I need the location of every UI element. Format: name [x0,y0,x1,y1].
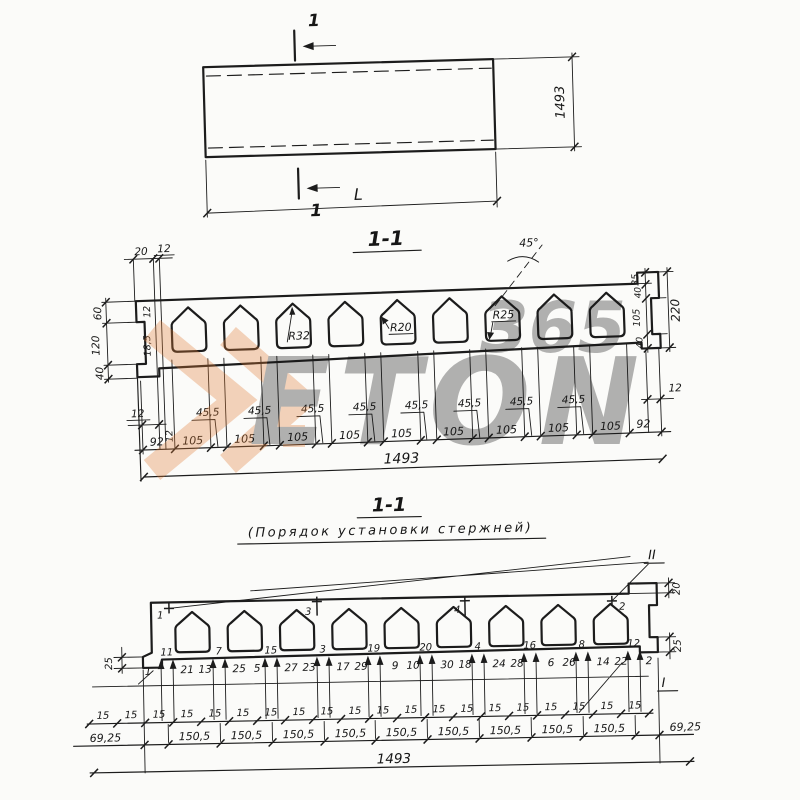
bar-offset-dim: 12 [131,408,145,420]
void-outline [332,609,367,650]
web-width-dim: 45,5 [458,397,482,410]
bar-spacing-dim: 15 [600,701,613,712]
void-width-dim: 105 [548,421,569,435]
bar-spacing-dim: 15 [349,706,362,717]
left-chain-dim: 60 [92,306,104,320]
right-chain-dim: 35 [630,273,641,285]
pitch-dim: 150,5 [179,730,211,744]
bar-spacing-dim: 15 [321,706,334,717]
bar-order-number: 15 [264,645,277,656]
radius-label: R25 [492,308,514,322]
edge-cover-dim: 25 [104,657,115,670]
void-outline [384,608,419,649]
web-width-dim: 45,5 [248,405,272,418]
bar-spacing-dim: 15 [293,707,306,718]
bar-spacing-dim: 15 [125,710,138,721]
bar-order-number: 25 [232,663,246,675]
bar-order-number: 27 [284,662,298,674]
web-width-dim: 45,5 [196,406,220,419]
hidden-edge-lines [206,68,493,148]
bar-spacing-dim: 15 [97,711,110,722]
bar-spacing-dim: 15 [488,703,501,714]
right-chain-dim: 105 [631,308,643,327]
web-width-dim: 45,5 [562,394,586,407]
overall-width-dim: 1493 [377,751,412,768]
void-outline [328,301,364,346]
void-outline [432,298,468,343]
bar-order-number: 18 [458,659,472,671]
void-outline [171,307,207,352]
lip-height-dim: 20 [672,582,683,595]
void-outline [589,292,625,337]
plan-width-dim: 1493 [553,85,569,118]
edge-bar-dim: 20 [134,246,148,258]
bar-order-number: 5 [254,663,261,675]
bar-order-number: 2 [646,655,653,667]
left-chain-dim: 40 [94,366,106,380]
marker-label: 3 [305,607,312,618]
marker-label: 1 [157,611,164,622]
void-outline [227,611,262,652]
pitch-dim: 150,5 [335,727,367,741]
bar-spacing-dim: 15 [377,705,390,716]
cut-mark-top: 1 [308,11,320,31]
bar-spacing-dim: 15 [628,700,641,711]
web-width-dim: 45,5 [353,401,377,414]
roman-ref-side: I [661,676,665,691]
bar-order-number: 10 [406,660,420,672]
leader-arrow-icon [487,332,494,340]
bar-spacing-dim: 15 [544,702,557,713]
bar-spacing-dim: 15 [404,705,417,716]
void-width-dim: 105 [287,430,308,444]
bar-order-number: 4 [474,641,481,652]
web-width-dim: 45,5 [510,395,534,408]
bar-order-number: 3 [320,644,327,655]
plan-length-dim: L [354,185,363,204]
bar-order-number: 24 [492,658,506,670]
bar-spacing-dim: 15 [265,707,278,718]
overall-width-dim: 1493 [383,450,419,467]
pitch-dim: 150,5 [438,725,470,739]
bar-spacing-dim: 15 [432,704,445,715]
leader-arrow-icon [289,307,295,315]
edge-dim: 92 [149,435,163,448]
pitch-dim: 150,5 [593,722,625,736]
bar-order-number: 22 [614,656,628,668]
roman-ref-top: II [648,548,656,563]
bar-order-number: 16 [523,640,536,651]
drawing-sheet: 1493 L 1 1 1-1 R32 R20 R25 45° 20 12 60 … [0,0,800,800]
bar-spacing-dim: 15 [572,701,585,712]
bar-order-number: 17 [336,661,350,673]
void-outline [175,612,210,653]
web-width-dim: 45,5 [405,399,429,412]
void-outline [541,605,576,646]
section-arrow-icon [306,184,317,192]
edge-dim: 92 [636,417,650,430]
section-arrow-icon [303,42,314,50]
bar-order-number: 21 [180,664,194,676]
bar-spacing-dim: 15 [209,708,222,719]
section-title: 1-1 [367,226,404,251]
section-view: 1-1 R32 R20 R25 45° 20 12 60 120 40 12 1… [87,216,688,483]
bar-order-number: 8 [578,639,585,650]
width-dim-line [493,53,582,153]
technical-drawing: 1493 L 1 1 1-1 R32 R20 R25 45° 20 12 60 … [0,0,800,800]
web-width-dim: 45,5 [301,403,325,416]
marker-label: 4 [454,605,461,616]
left-chain-dim: 120 [90,335,103,356]
bar-cover-dim: 12 [142,306,153,318]
pitch-dim: 150,5 [283,728,315,742]
bar-order-number: 26 [562,657,576,669]
leader-arrow-icon [381,316,388,324]
bar-order-number: 23 [302,662,316,674]
void-width-dim: 105 [496,423,517,437]
bar-pair-dim: 12 [157,243,171,255]
pitch-dim: 150,5 [386,726,418,740]
radius-label: R32 [288,329,310,343]
bar-order-number: 13 [198,664,212,676]
bar-order-number: 28 [510,658,524,670]
edge-cover-dim: 25 [673,639,684,652]
void-width-dim: 105 [339,428,360,442]
bar-order-number: 6 [548,657,555,669]
section-cut-line [294,31,299,199]
pitch-dim-line [74,734,694,746]
bar-order-number: 9 [392,660,399,672]
order-title: 1-1 [372,494,407,517]
pitch-dim: 150,5 [490,724,522,738]
end-pitch-dim: 69,25 [90,731,122,745]
bar-order-number: 11 [160,647,173,658]
void-width-dim: 105 [600,419,621,433]
bar-order-number: 30 [440,659,454,671]
void-row [175,604,628,653]
order-subtitle: (Порядок установки стержней) [248,520,534,540]
angle-arc [507,256,538,263]
bar-spacing-dim: 15 [153,710,166,721]
pitch-dim: 150,5 [541,723,573,737]
void-width-dim: 105 [443,425,464,439]
bar-spacing-dim: 15 [460,704,473,715]
pitch-dim: 150,5 [231,729,263,743]
void-width-dim: 105 [391,427,412,441]
order-view: 1-1 (Порядок установки стержней) 1 3 4 2… [69,488,702,777]
bar-order-number: 20 [419,642,432,653]
void-outline [537,294,573,339]
bar-offset-dim: 12 [668,382,682,394]
bar-spacing-dim: 15 [516,703,529,714]
bar-order-number: 14 [596,656,610,668]
slab-outline [203,59,495,157]
void-outline [489,606,524,647]
void-width-dim: 105 [182,434,203,448]
angle-dim: 45° [519,236,539,250]
bar-spacing-dim: 15 [181,709,194,720]
bar-order-number: 29 [354,661,368,673]
bar-order-number: 1 [145,666,152,678]
length-dim-line [206,152,497,217]
end-pitch-dim: 69,25 [669,720,701,734]
bar-spacing-dim: 15 [237,708,250,719]
misc-lines [92,661,649,722]
bar-cover-dim: 18,5 [142,335,154,357]
height-dim: 220 [668,298,683,322]
reference-leader-lines [168,556,649,608]
bar-order-number: 19 [367,643,380,654]
bar-order-number: 7 [216,646,223,657]
marker-label: 2 [619,602,626,613]
right-chain-dim: 40 [634,286,644,298]
plan-view: 1493 L 1 1 [198,4,584,225]
right-chain-dim: 40 [635,336,645,348]
bar-order-number: 12 [627,638,640,649]
void-outline [223,305,259,350]
void-width-dim: 105 [234,432,255,446]
cut-mark-bottom: 1 [310,201,322,221]
radius-label: R20 [390,321,412,335]
